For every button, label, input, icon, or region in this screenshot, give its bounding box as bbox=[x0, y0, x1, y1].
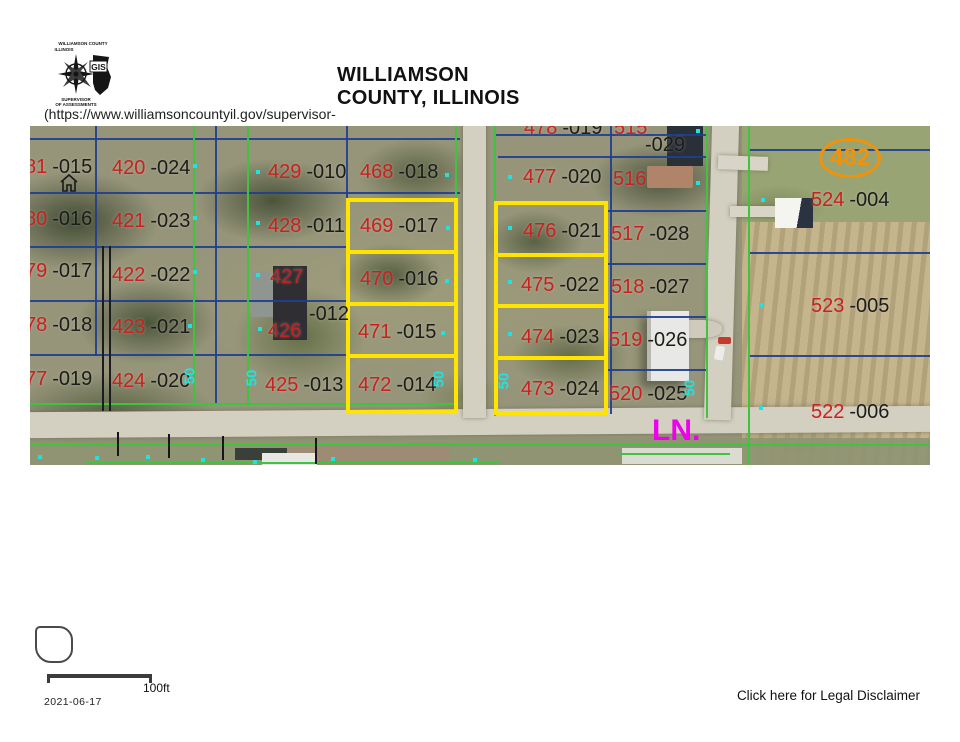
parcel-line bbox=[608, 263, 708, 265]
aerial-south-strip bbox=[30, 438, 930, 465]
section-line bbox=[706, 126, 708, 418]
parcel-label: 474-023 bbox=[521, 326, 599, 349]
survey-dot bbox=[193, 270, 197, 274]
lot-width-label: 50 bbox=[182, 368, 199, 385]
survey-dot bbox=[38, 455, 42, 459]
legal-disclaimer-link[interactable]: Click here for Legal Disclaimer bbox=[737, 688, 920, 703]
survey-dot bbox=[188, 324, 192, 328]
parcel-line bbox=[608, 210, 708, 212]
road-north-south-middle bbox=[463, 126, 486, 418]
parcel-label: 472-014 bbox=[358, 374, 436, 397]
parcel-label: 517-028 bbox=[611, 223, 689, 246]
parcel-line bbox=[215, 126, 217, 404]
survey-dot bbox=[473, 458, 477, 462]
parcel-line bbox=[30, 354, 350, 356]
logo-top-text2: ILLINOIS bbox=[55, 47, 74, 52]
building-white-shed bbox=[775, 198, 813, 228]
parcel-label: 478-019 bbox=[524, 126, 602, 140]
section-line bbox=[620, 453, 730, 455]
building-tan-roof bbox=[647, 166, 693, 188]
survey-dot bbox=[696, 181, 700, 185]
survey-dot bbox=[445, 173, 449, 177]
parcel-line bbox=[748, 252, 930, 254]
parcel-map[interactable]: 81-015420-02480-016421-02379-017422-0227… bbox=[30, 126, 930, 465]
survey-dot bbox=[201, 458, 205, 462]
parcel-line bbox=[30, 246, 350, 248]
inset-shape bbox=[35, 626, 73, 663]
survey-dot bbox=[331, 457, 335, 461]
survey-dot bbox=[508, 226, 512, 230]
parcel-label: 524-004 bbox=[811, 189, 889, 212]
survey-dot bbox=[256, 273, 260, 277]
parcel-label: 79-017 bbox=[30, 260, 92, 283]
vehicle-red bbox=[718, 337, 731, 344]
lot-width-label: 50 bbox=[244, 370, 261, 387]
parcel-label: 81-015 bbox=[30, 156, 92, 179]
survey-dot bbox=[441, 331, 445, 335]
scale-bar-label: 100ft bbox=[143, 681, 170, 695]
parcel-line bbox=[608, 369, 708, 371]
survey-dot bbox=[256, 221, 260, 225]
parcel-line bbox=[608, 316, 708, 318]
parcel-label: 475-022 bbox=[521, 274, 599, 297]
parcel-label: 522-006 bbox=[811, 401, 889, 424]
survey-dot bbox=[696, 129, 700, 133]
survey-dot bbox=[508, 280, 512, 284]
lot-width-label: 50 bbox=[496, 373, 513, 390]
parcel-label: 78-018 bbox=[30, 314, 92, 337]
parcel-label: 516 bbox=[613, 168, 651, 191]
parcel-label: -029 bbox=[640, 134, 685, 157]
parcel-label: 429-010 bbox=[268, 161, 346, 184]
survey-dot bbox=[95, 456, 99, 460]
parcel-line bbox=[30, 300, 350, 302]
source-url[interactable]: (https://www.williamsoncountyil.gov/supe… bbox=[44, 106, 336, 122]
lot-width-label: 50 bbox=[682, 380, 699, 397]
parcel-label: 77-019 bbox=[30, 368, 92, 391]
parcel-label: 468-018 bbox=[360, 161, 438, 184]
circled-parcel-badge: 482 bbox=[819, 138, 881, 178]
page-title-line1: WILLIAMSON bbox=[337, 64, 520, 87]
parcel-label: 520-025 bbox=[609, 383, 687, 406]
parcel-line bbox=[610, 126, 612, 414]
parcel-label: 427 bbox=[270, 266, 308, 289]
survey-dot bbox=[253, 460, 257, 464]
lot-width-label: 50 bbox=[431, 371, 448, 388]
parcel-label: 428-011 bbox=[268, 215, 345, 238]
survey-dot bbox=[193, 164, 197, 168]
parcel-label: 523-005 bbox=[811, 295, 889, 318]
driveway bbox=[730, 206, 778, 217]
parcel-label: 80-016 bbox=[30, 208, 92, 231]
parcel-label: 423-021 bbox=[112, 316, 190, 339]
parcel-label: 518-027 bbox=[611, 276, 689, 299]
parcel-label: 477-020 bbox=[523, 166, 601, 189]
page-title-line2: COUNTY, ILLINOIS bbox=[337, 87, 520, 110]
survey-dot bbox=[258, 327, 262, 331]
parcel-line bbox=[95, 126, 97, 356]
parcel-label: 424-020 bbox=[112, 370, 190, 393]
parcel-label: 425-013 bbox=[265, 374, 343, 397]
fence-post bbox=[315, 438, 317, 464]
parcel-label: 470-016 bbox=[360, 268, 438, 291]
logo-top-text: WILLIAMSON COUNTY bbox=[58, 41, 107, 46]
parcel-label: 473-024 bbox=[521, 378, 599, 401]
parcel-label: 420-024 bbox=[112, 157, 190, 180]
survey-dot bbox=[761, 198, 765, 202]
survey-dot bbox=[508, 175, 512, 179]
section-line bbox=[247, 126, 249, 404]
survey-dot bbox=[445, 279, 449, 283]
parcel-label: 476-021 bbox=[523, 220, 601, 243]
fence-post bbox=[117, 432, 119, 456]
map-date: 2021-06-17 bbox=[44, 696, 102, 708]
parcel-label: 422-022 bbox=[112, 264, 190, 287]
page-title: WILLIAMSON COUNTY, ILLINOIS bbox=[337, 64, 520, 110]
parcel-label: 519-026 bbox=[609, 329, 687, 352]
scale-bar bbox=[47, 674, 152, 678]
fence-line bbox=[102, 246, 111, 411]
parcel-label: 426 bbox=[268, 320, 306, 343]
county-gis-logo: WILLIAMSON COUNTY ILLINOIS GIS SUPERVISO… bbox=[50, 40, 116, 108]
fence-post bbox=[168, 434, 170, 458]
survey-dot bbox=[256, 170, 260, 174]
road-spur bbox=[718, 155, 768, 171]
parcel-line bbox=[748, 355, 930, 357]
parcel-label: -012 bbox=[304, 303, 349, 326]
building-white-south bbox=[622, 448, 742, 464]
survey-dot bbox=[759, 303, 763, 307]
section-line bbox=[85, 462, 500, 464]
survey-dot bbox=[146, 455, 150, 459]
parcel-label: 421-023 bbox=[112, 210, 190, 233]
parcel-label: 469-017 bbox=[360, 215, 438, 238]
survey-dot bbox=[193, 216, 197, 220]
section-line bbox=[30, 444, 930, 446]
survey-dot bbox=[508, 332, 512, 336]
survey-dot bbox=[759, 406, 763, 410]
survey-dot bbox=[446, 226, 450, 230]
parcel-label: 471-015 bbox=[358, 321, 436, 344]
section-line bbox=[748, 126, 750, 465]
fence-post bbox=[222, 436, 224, 460]
compass-rose-icon bbox=[58, 54, 94, 94]
street-name-label: LN. bbox=[652, 414, 700, 448]
logo-gis-text: GIS bbox=[91, 62, 106, 72]
